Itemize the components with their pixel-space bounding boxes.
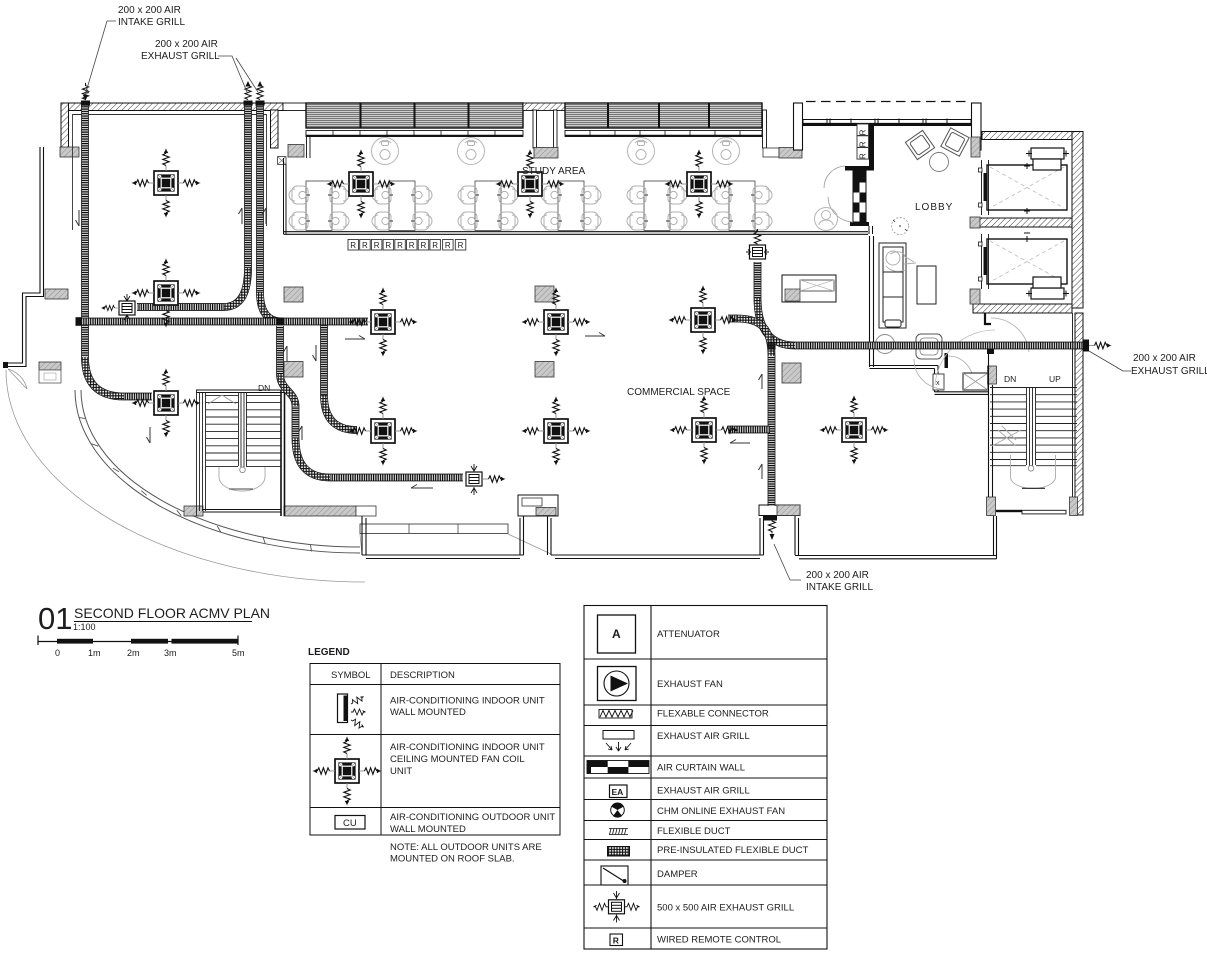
svg-text:CHM ONLINE EXHAUST FAN: CHM ONLINE EXHAUST FAN [657, 806, 785, 817]
svg-text:R: R [859, 153, 868, 159]
svg-text:2m: 2m [127, 648, 140, 658]
svg-text:STUDY AREA: STUDY AREA [522, 166, 585, 177]
svg-text:MOUNTED ON ROOF SLAB.: MOUNTED ON ROOF SLAB. [390, 854, 515, 865]
svg-text:NOTE: ALL OUTDOOR UNITS ARE: NOTE: ALL OUTDOOR UNITS ARE [390, 842, 542, 853]
svg-text:COMMERCIAL SPACE: COMMERCIAL SPACE [627, 387, 731, 398]
svg-text:WALL MOUNTED: WALL MOUNTED [390, 707, 466, 718]
svg-text:SECOND FLOOR ACMV PLAN: SECOND FLOOR ACMV PLAN [74, 605, 270, 621]
svg-text:EXHAUST GRILL: EXHAUST GRILL [141, 51, 220, 62]
svg-text:R: R [432, 241, 438, 250]
svg-text:EA: EA [612, 787, 624, 797]
svg-text:AIR-CONDITIONING OUTDOOR UNIT: AIR-CONDITIONING OUTDOOR UNIT [390, 812, 555, 823]
svg-text:5m: 5m [232, 648, 245, 658]
svg-text:500 x 500 AIR EXHAUST GRILL: 500 x 500 AIR EXHAUST GRILL [657, 903, 794, 914]
svg-text:LOBBY: LOBBY [915, 202, 953, 213]
svg-text:SYMBOL: SYMBOL [331, 670, 371, 681]
svg-text:CEILING MOUNTED FAN COIL: CEILING MOUNTED FAN COIL [390, 754, 525, 765]
svg-text:R: R [859, 129, 868, 135]
svg-text:200 x 200 AIR: 200 x 200 AIR [155, 39, 218, 50]
svg-text:R: R [374, 241, 380, 250]
svg-text:EXHAUST AIR GRILL: EXHAUST AIR GRILL [657, 731, 750, 742]
svg-text:PRE-INSULATED FLEXIBLE DUCT: PRE-INSULATED FLEXIBLE DUCT [657, 845, 809, 856]
svg-text:200 x 200 AIR: 200 x 200 AIR [1133, 353, 1196, 364]
svg-text:R: R [445, 241, 451, 250]
svg-text:1:100: 1:100 [73, 622, 96, 632]
svg-text:DN: DN [258, 383, 270, 393]
svg-text:FLEXABLE CONNECTOR: FLEXABLE CONNECTOR [657, 709, 769, 720]
svg-text:0: 0 [55, 648, 60, 658]
svg-text:200 x 200 AIR: 200 x 200 AIR [806, 570, 869, 581]
svg-text:EXHAUST GRILL: EXHAUST GRILL [1131, 366, 1207, 377]
svg-text:EXHAUST FAN: EXHAUST FAN [657, 679, 723, 690]
svg-text:DESCRIPTION: DESCRIPTION [390, 670, 455, 681]
svg-text:R: R [859, 141, 868, 147]
svg-text:WALL MOUNTED: WALL MOUNTED [390, 824, 466, 835]
svg-text:FLEXIBLE DUCT: FLEXIBLE DUCT [657, 826, 731, 837]
svg-text:INTAKE GRILL: INTAKE GRILL [118, 17, 185, 28]
svg-text:R: R [362, 241, 368, 250]
svg-text:1m: 1m [88, 648, 101, 658]
svg-text:WIRED REMOTE CONTROL: WIRED REMOTE CONTROL [657, 935, 781, 946]
svg-text:INTAKE GRILL: INTAKE GRILL [806, 582, 873, 593]
svg-text:R: R [409, 241, 415, 250]
svg-text:R: R [350, 241, 356, 250]
svg-text:AIR-CONDITIONING INDOOR UNIT: AIR-CONDITIONING INDOOR UNIT [390, 742, 545, 753]
svg-text:200 x 200 AIR: 200 x 200 AIR [118, 5, 181, 16]
svg-text:DAMPER: DAMPER [657, 869, 698, 880]
svg-text:EXHAUST AIR GRILL: EXHAUST AIR GRILL [657, 786, 750, 797]
svg-text:R: R [385, 241, 391, 250]
svg-text:R: R [458, 241, 464, 250]
svg-text:AIR CURTAIN WALL: AIR CURTAIN WALL [657, 763, 745, 774]
svg-text:A: A [612, 627, 621, 641]
svg-text:R: R [421, 241, 427, 250]
svg-text:CU: CU [343, 818, 357, 829]
svg-text:ATTENUATOR: ATTENUATOR [657, 629, 720, 640]
svg-text:3m: 3m [164, 648, 177, 658]
svg-text:R: R [397, 241, 403, 250]
svg-text:01: 01 [38, 601, 72, 636]
svg-text:DN: DN [1004, 374, 1016, 384]
svg-text:AIR-CONDITIONING INDOOR UNIT: AIR-CONDITIONING INDOOR UNIT [390, 696, 545, 707]
svg-text:R: R [613, 936, 619, 946]
svg-text:LEGEND: LEGEND [308, 647, 350, 658]
svg-text:UNIT: UNIT [390, 766, 412, 777]
svg-text:x: x [936, 380, 940, 387]
svg-text:UP: UP [1049, 374, 1061, 384]
